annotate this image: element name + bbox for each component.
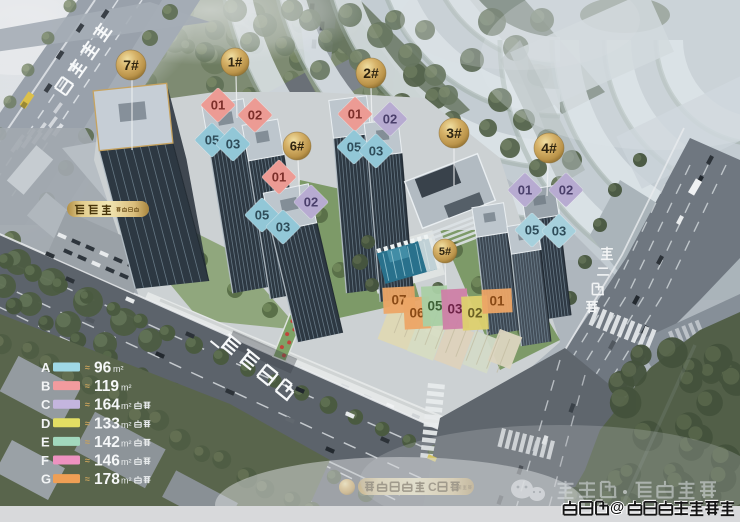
svg-text:2#: 2# (363, 65, 379, 81)
svg-text:96: 96 (94, 360, 112, 377)
svg-text:6#: 6# (290, 139, 305, 154)
svg-text:A: A (41, 360, 51, 375)
svg-text:01: 01 (348, 107, 362, 122)
svg-text:03: 03 (552, 224, 566, 239)
svg-text:B: B (41, 379, 50, 394)
svg-text:146: 146 (94, 453, 120, 470)
svg-text:1#: 1# (228, 55, 243, 70)
svg-text:05: 05 (427, 299, 443, 314)
svg-text:02: 02 (383, 112, 397, 127)
svg-text:E: E (41, 434, 50, 449)
svg-text:D: D (41, 416, 50, 431)
svg-text:01: 01 (272, 170, 286, 185)
svg-text:4#: 4# (541, 140, 557, 156)
svg-text:142: 142 (94, 434, 120, 451)
svg-text:≈: ≈ (85, 456, 90, 466)
svg-text:≈: ≈ (85, 418, 90, 428)
svg-text:133: 133 (94, 415, 120, 432)
svg-text:7#: 7# (123, 57, 139, 73)
svg-text:3#: 3# (446, 125, 462, 141)
svg-text:02: 02 (559, 183, 573, 198)
svg-text:03: 03 (369, 144, 383, 159)
svg-text:≈: ≈ (85, 474, 90, 484)
svg-text:05: 05 (255, 208, 269, 223)
svg-text:m²: m² (121, 476, 132, 486)
svg-text:m²: m² (121, 457, 132, 467)
svg-text:m²: m² (121, 438, 132, 448)
svg-text:G: G (41, 472, 51, 487)
svg-text:≈: ≈ (85, 437, 90, 447)
svg-text:03: 03 (447, 302, 463, 317)
svg-text:m²: m² (121, 401, 132, 411)
svg-text:02: 02 (467, 306, 482, 321)
svg-text:@: @ (610, 500, 624, 516)
svg-text:m²: m² (121, 383, 132, 393)
svg-text:m²: m² (113, 364, 124, 374)
svg-text:05: 05 (525, 223, 539, 238)
svg-text:03: 03 (226, 137, 240, 152)
svg-text:m²: m² (121, 420, 132, 430)
svg-text:01: 01 (489, 294, 505, 309)
svg-text:05: 05 (347, 140, 361, 155)
svg-text:02: 02 (248, 108, 262, 123)
svg-text:119: 119 (94, 378, 119, 395)
svg-text:≈: ≈ (85, 381, 90, 391)
svg-text:F: F (41, 453, 49, 468)
svg-text:C: C (41, 397, 51, 412)
svg-text:02: 02 (304, 195, 318, 210)
svg-text:178: 178 (94, 471, 120, 488)
svg-text:164: 164 (94, 397, 120, 414)
svg-text:≈: ≈ (85, 400, 90, 410)
svg-text:≈: ≈ (85, 363, 90, 373)
svg-text:5#: 5# (439, 246, 451, 258)
svg-text:01: 01 (211, 98, 225, 113)
svg-text:01: 01 (518, 183, 532, 198)
svg-text:03: 03 (276, 220, 290, 235)
